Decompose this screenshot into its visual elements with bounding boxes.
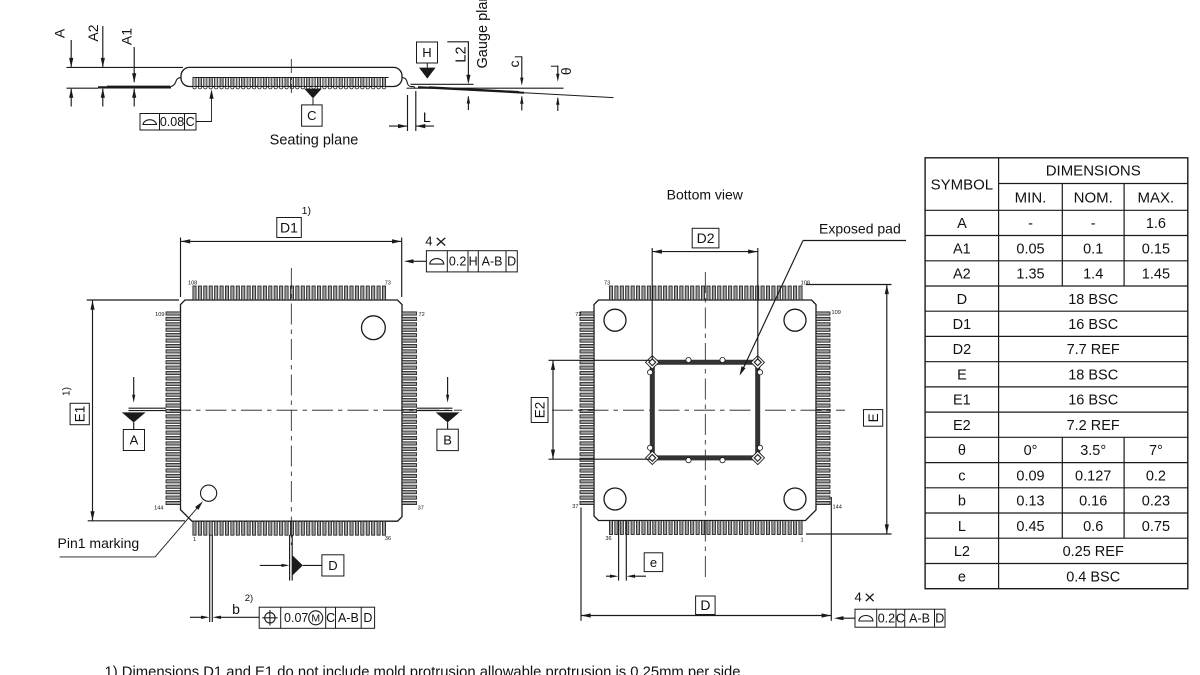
- svg-text:1.6: 1.6: [1146, 216, 1166, 232]
- svg-text:A1: A1: [953, 241, 971, 257]
- svg-text:0.45: 0.45: [1016, 519, 1044, 535]
- svg-text:1.4: 1.4: [1083, 267, 1103, 283]
- svg-text:A2: A2: [85, 24, 101, 41]
- svg-text:b: b: [232, 601, 240, 617]
- svg-text:0.6: 0.6: [1083, 519, 1103, 535]
- svg-text:Gauge plane: Gauge plane: [475, 0, 491, 69]
- svg-text:D: D: [363, 611, 372, 625]
- svg-text:73: 73: [604, 280, 610, 286]
- svg-text:109: 109: [155, 312, 164, 318]
- svg-text:0.09: 0.09: [1016, 468, 1044, 484]
- svg-text:A-B: A-B: [909, 612, 930, 626]
- svg-text:-: -: [1091, 216, 1096, 232]
- svg-text:θ: θ: [558, 67, 574, 75]
- svg-text:b: b: [958, 494, 966, 510]
- svg-text:0°: 0°: [1024, 443, 1038, 459]
- svg-text:36: 36: [385, 536, 391, 542]
- svg-text:D1: D1: [280, 219, 298, 235]
- svg-text:109: 109: [832, 310, 841, 316]
- svg-text:MAX.: MAX.: [1138, 189, 1175, 206]
- svg-text:1) Dimensions D1 and E1 do not: 1) Dimensions D1 and E1 do not include m…: [105, 664, 741, 675]
- svg-text:1): 1): [302, 205, 311, 217]
- svg-text:Seating plane: Seating plane: [270, 133, 359, 149]
- svg-text:4: 4: [425, 234, 432, 249]
- svg-text:D2: D2: [953, 342, 972, 358]
- svg-text:C: C: [896, 612, 905, 626]
- svg-text:0.2: 0.2: [449, 255, 466, 269]
- svg-text:e: e: [650, 555, 657, 570]
- svg-text:D: D: [957, 292, 967, 308]
- svg-text:18 BSC: 18 BSC: [1068, 292, 1118, 308]
- svg-text:E2: E2: [532, 402, 547, 419]
- svg-text:0.16: 0.16: [1079, 494, 1107, 510]
- svg-text:0.25 REF: 0.25 REF: [1063, 544, 1124, 560]
- svg-text:E1: E1: [72, 406, 87, 423]
- svg-text:C: C: [186, 115, 195, 129]
- svg-text:1): 1): [62, 387, 73, 396]
- svg-text:0.2: 0.2: [1146, 468, 1166, 484]
- svg-text:D: D: [700, 597, 710, 613]
- svg-text:1: 1: [193, 537, 196, 543]
- svg-text:0.15: 0.15: [1142, 241, 1170, 257]
- svg-text:D2: D2: [697, 230, 715, 246]
- svg-text:36: 36: [605, 536, 611, 542]
- svg-text:37: 37: [572, 504, 578, 510]
- svg-text:7.2 REF: 7.2 REF: [1067, 418, 1120, 434]
- svg-text:E2: E2: [953, 418, 971, 434]
- svg-text:MIN.: MIN.: [1015, 189, 1047, 206]
- svg-text:e: e: [958, 569, 966, 585]
- svg-text:D: D: [507, 255, 516, 269]
- svg-text:0.13: 0.13: [1016, 494, 1044, 510]
- svg-text:0.05: 0.05: [1016, 241, 1044, 257]
- svg-text:L: L: [423, 109, 431, 125]
- svg-text:18 BSC: 18 BSC: [1068, 368, 1118, 384]
- svg-text:E: E: [866, 413, 881, 422]
- svg-text:0.75: 0.75: [1142, 519, 1170, 535]
- svg-text:NOM.: NOM.: [1074, 189, 1113, 206]
- svg-text:H: H: [469, 255, 478, 269]
- svg-text:16 BSC: 16 BSC: [1068, 393, 1118, 409]
- svg-text:D: D: [935, 612, 944, 626]
- svg-text:37: 37: [418, 505, 424, 511]
- svg-text:2): 2): [245, 593, 253, 604]
- svg-text:SYMBOL: SYMBOL: [931, 176, 994, 193]
- svg-text:c: c: [958, 468, 965, 484]
- svg-text:E: E: [957, 368, 967, 384]
- svg-text:0.23: 0.23: [1142, 494, 1170, 510]
- svg-text:C: C: [307, 108, 316, 123]
- svg-text:H: H: [422, 45, 431, 60]
- svg-text:108: 108: [188, 280, 197, 286]
- svg-text:3.5°: 3.5°: [1080, 443, 1106, 459]
- svg-text:DIMENSIONS: DIMENSIONS: [1046, 163, 1141, 180]
- svg-text:C: C: [326, 611, 335, 625]
- svg-text:16 BSC: 16 BSC: [1068, 317, 1118, 333]
- svg-text:1.35: 1.35: [1016, 267, 1044, 283]
- svg-text:0.1: 0.1: [1083, 241, 1103, 257]
- svg-text:144: 144: [833, 504, 842, 510]
- svg-text:A-B: A-B: [338, 611, 359, 625]
- svg-text:108: 108: [801, 280, 810, 286]
- svg-text:θ: θ: [958, 443, 966, 459]
- svg-text:A: A: [957, 216, 967, 232]
- svg-text:73: 73: [385, 280, 391, 286]
- svg-text:0.4 BSC: 0.4 BSC: [1066, 569, 1120, 585]
- svg-text:L2: L2: [453, 46, 469, 62]
- svg-text:144: 144: [154, 505, 163, 511]
- svg-text:L: L: [958, 519, 966, 535]
- svg-text:0.08: 0.08: [160, 115, 184, 129]
- svg-text:72: 72: [419, 312, 425, 318]
- svg-text:Pin1 marking: Pin1 marking: [58, 535, 140, 551]
- svg-text:7.7 REF: 7.7 REF: [1067, 342, 1120, 358]
- svg-text:A1: A1: [118, 28, 134, 45]
- svg-text:A2: A2: [953, 267, 971, 283]
- svg-text:A-B: A-B: [482, 255, 503, 269]
- svg-text:Exposed pad: Exposed pad: [819, 221, 901, 237]
- svg-text:0.07: 0.07: [284, 611, 308, 625]
- svg-text:1: 1: [800, 538, 803, 544]
- svg-text:Bottom view: Bottom view: [667, 187, 744, 203]
- svg-text:D1: D1: [953, 317, 972, 333]
- svg-text:B: B: [443, 432, 452, 447]
- svg-text:D: D: [328, 558, 337, 573]
- svg-text:M: M: [311, 613, 320, 625]
- svg-text:-: -: [1028, 216, 1033, 232]
- svg-text:4: 4: [855, 589, 862, 604]
- svg-text:A: A: [52, 28, 68, 38]
- svg-text:1.45: 1.45: [1142, 267, 1170, 283]
- svg-text:A: A: [130, 433, 139, 448]
- svg-text:c: c: [506, 61, 522, 68]
- svg-text:72: 72: [575, 312, 581, 318]
- svg-text:7°: 7°: [1149, 443, 1163, 459]
- svg-text:L2: L2: [954, 544, 970, 560]
- svg-text:0.2: 0.2: [878, 612, 895, 626]
- svg-text:0.127: 0.127: [1075, 468, 1111, 484]
- svg-text:E1: E1: [953, 393, 971, 409]
